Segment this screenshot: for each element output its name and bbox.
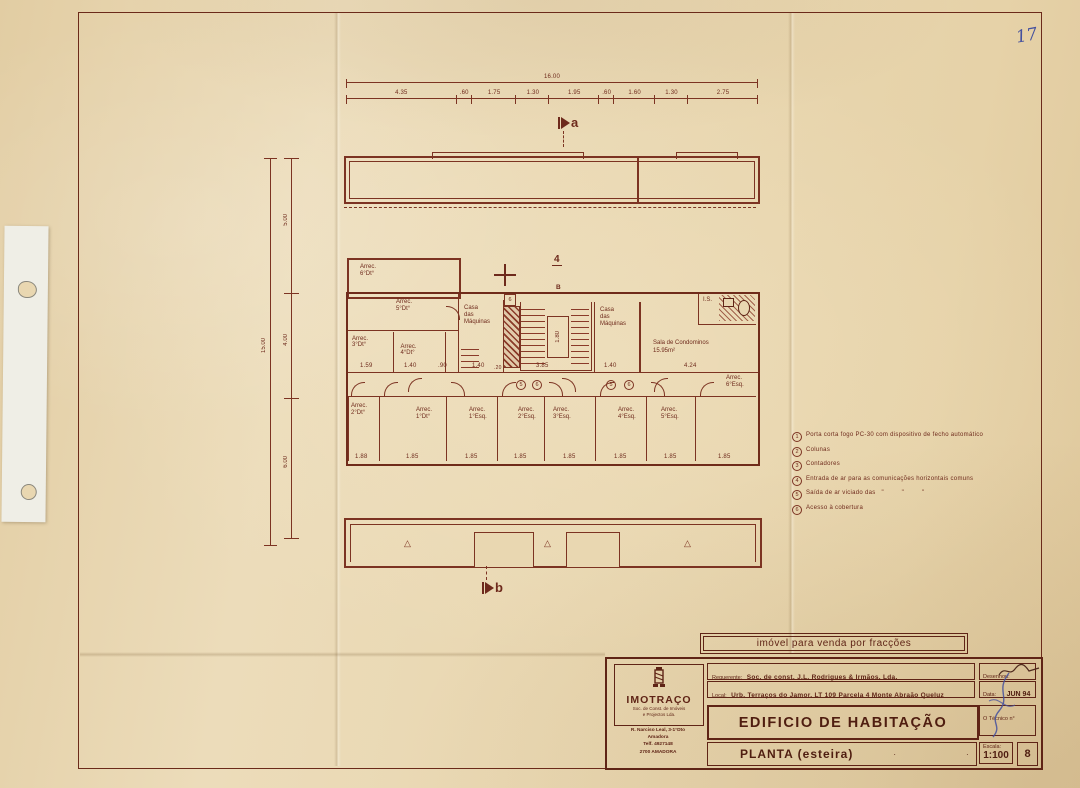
section-marker-a: a [558,115,578,130]
room-area: 15.95m² [653,348,675,355]
legend-text: Contadores [806,461,840,467]
drawing-title: PLANTA (esteira) [740,747,853,761]
legend-item: 3Contadores [792,461,1060,471]
vent-marker-4: 4 [552,254,562,266]
fold-crease [788,13,795,653]
sale-stamp-box: imóvel para venda por fracções [700,633,968,654]
legend-text: Entrada de ar para as comunicações horiz… [806,476,973,482]
requerente-row: Requerente: Soc. de const. J.L. Rodrigue… [707,663,975,680]
triangle-vent-icon: △ [404,538,411,549]
section-bar-icon [482,582,484,594]
fold-crease [80,652,605,657]
dim-seg-left: 5.00 [283,214,289,226]
room-label: Arrec. 5°Esq. [661,407,679,421]
dim-column-left: 15.00 5.00 4.00 6.00 [262,152,302,554]
room-label: Arrec. 1°Esq. [469,407,487,421]
room-arrec-6esq: Arrec. 6°Esq. 1.85 [696,396,756,461]
dim-total-left: 15.00 [261,338,267,353]
project-title: EDIFICIO DE HABITAÇÃO [739,715,947,731]
escala-box: Escala: 1:100 [979,742,1013,764]
dim-mid: 1.40 [472,363,484,369]
legend-item: 5Saída de ar viciado das " " " [792,490,1060,500]
circled-marker-6: 6 [532,380,542,390]
dim-bottom: 1.85 [664,454,676,460]
dim-mid: 3.85 [536,363,548,369]
legend-item: 2Colunas [792,447,1060,457]
dim-seg-left: 4.00 [283,334,289,346]
dim-bottom: 1.85 [718,454,730,460]
sheet-number-box: 8 [1017,742,1038,766]
shaft-number-badge: 6 [504,294,516,306]
legend-text: Acesso à cobertura [806,505,863,511]
stair-landing: 1.80 [547,316,569,358]
grid-marker-B: B [556,284,561,291]
room-label: Arrec. 2°Dt° [351,403,367,417]
dim-line-mid [348,372,758,373]
legend-text: Colunas [806,447,830,453]
room-arrec-5esq: Arrec. 5°Esq. 1.85 [647,396,696,461]
local-value: Urb. Terraços do Jamor, LT 109 Parcela 4… [731,692,944,699]
punch-hole-icon [18,281,37,298]
dashed-line [344,207,756,208]
terrace-recess [566,532,620,567]
dot-mark: · [966,750,969,759]
dim-bottom: 1.85 [406,454,418,460]
legend: 1Porta corta fogo PC-30 com dispositivo … [792,432,1060,519]
legend-item: 4Entrada de ar para as comunicações hori… [792,476,1060,486]
legend-number: 2 [792,447,802,457]
room-label: Arrec. 6°Esq. [726,375,744,389]
stair-flight [521,304,545,366]
room-label: Arrec. 3°Dt° [352,336,368,350]
dim-total-top: 16.00 [544,74,560,80]
dim-mid: .90 [438,363,447,369]
dim-bottom: 1.85 [614,454,626,460]
room-arrec-4esq: Arrec. 4°Esq. 1.85 [596,396,647,461]
dim-seg: 2.75 [717,90,729,96]
dim-mid: .20 [494,365,502,371]
imotraco-logo-icon [651,667,667,689]
local-label: Local: [712,693,727,699]
dim-mid: 1.40 [604,363,616,369]
legend-item: 1Porta corta fogo PC-30 com dispositivo … [792,432,1060,442]
terrace-bottom-outline: △ △ △ [344,518,762,568]
company-name: IMOTRAÇO [615,694,703,706]
room-casa-maquinas-right: Casa das Máquinas [594,302,640,373]
legend-number: 4 [792,476,802,486]
room-label: Arrec. 4°Dt° [401,344,417,358]
section-triangle-icon [561,117,570,129]
dim-mid: 1.40 [404,363,416,369]
room-label: Arrec. 2°Esq. [518,407,536,421]
section-marker-b: b [482,580,503,595]
legend-number: 3 [792,461,802,471]
dim-mid: 1.59 [360,363,372,369]
north-cross-icon [494,264,516,286]
dot-mark: · [893,750,896,759]
room-arrec-1dt: Arrec. 1°Dt° 1.85 [380,396,447,461]
legend-number: 5 [792,490,802,500]
dim-bottom: 1.85 [563,454,575,460]
circled-marker-5: 5 [516,380,526,390]
room-label: Casa das Máquinas [464,305,490,326]
punch-strip [1,226,48,522]
section-letter: a [571,115,578,130]
dim-line-total: 16.00 [346,82,758,83]
handwritten-page-number: 17 [1014,24,1039,47]
punch-hole-icon [21,484,37,500]
terrace-step-notch [432,152,584,159]
door-arc-icon [562,378,576,392]
room-arrec-5dt: Arrec. 5°Dt° [348,294,459,331]
dim-seg: 4.35 [395,90,407,96]
triangle-vent-icon: △ [684,538,691,549]
room-arrec-1esq: Arrec. 1°Esq. 1.85 [447,396,498,461]
dim-row-top: 4.35 .60 1.75 1.30 1.95 .60 1.60 1.30 2.… [346,98,758,99]
room-arrec-3esq: Arrec. 3°Esq. 1.85 [545,396,596,461]
dim-bottom: 1.85 [514,454,526,460]
stairwell: 1.80 [520,302,592,371]
terrace-top-inner-line [349,161,755,199]
local-row: Local: Urb. Terraços do Jamor, LT 109 Pa… [707,681,975,698]
section-line [563,131,565,147]
dim-seg: 1.75 [488,90,500,96]
room-label: Arrec. 1°Dt° [416,407,432,421]
room-label: I.S. [703,297,712,304]
room-label: Arrec. 3°Esq. [553,407,571,421]
dim-bottom: 1.88 [355,454,367,460]
stair-dim: 1.80 [555,331,561,343]
requerente-value: Soc. de const. J.L. Rodrigues & Irmãos, … [747,674,898,681]
door-arc-icon [408,378,422,392]
room-label: Arrec. 4°Esq. [618,407,636,421]
legend-item: 6Acesso à cobertura [792,505,1060,515]
room-arrec-2dt: Arrec. 2°Dt° 1.88 [348,396,380,461]
legend-text: Porta corta fogo PC-30 com dispositivo d… [806,432,983,438]
legend-text: Saída de ar viciado das " " " [806,490,924,496]
room-arrec-2esq: Arrec. 2°Esq. 1.85 [498,396,545,461]
floor-plan: 16.00 4.35 .60 1.75 1.30 1.95 .60 1.60 1… [344,68,760,613]
dim-seg: .60 [602,90,611,96]
circled-marker-6: 6 [624,380,634,390]
section-bar-icon [558,117,560,129]
dim-seg: 1.95 [568,90,580,96]
dim-seg: .60 [460,90,469,96]
drawing-title-box: PLANTA (esteira) · · [707,742,977,766]
section-letter: b [495,580,503,595]
stair-flight [571,304,589,366]
sink-icon [723,298,734,307]
room-label: Arrec. 6°Dt° [360,264,376,278]
project-title-box: EDIFICIO DE HABITAÇÃO [707,705,979,740]
dim-mid: 4.24 [684,363,696,369]
company-address: R. Narciso Leal, 3-1°Dto Amadora Telf. 4… [614,727,702,756]
main-block: Arrec. 5°Dt° Arrec. 3°Dt° Arrec. 4°Dt° C… [346,292,760,466]
legend-number: 1 [792,432,802,442]
sale-stamp-text: imóvel para venda por fracções [703,636,965,651]
dim-seg: 1.30 [665,90,677,96]
terrace-divider-wall [637,158,639,202]
sheet-number: 8 [1024,748,1030,760]
dim-seg: 1.60 [628,90,640,96]
title-block: IMOTRAÇO Soc. de Const. de Imóveis e Pro… [605,657,1043,770]
storage-rooms-row: Arrec. 2°Dt° 1.88 Arrec. 1°Dt° 1.85 Arre… [348,396,752,461]
toilet-icon [738,300,750,316]
ventilation-shaft [503,306,520,368]
escala-value: 1:100 [983,750,1009,761]
section-line [486,566,488,580]
room-label: Sala de Condominos [653,340,709,347]
dim-seg: 1.30 [527,90,539,96]
blueprint-sheet: 17 16.00 4.35 .60 1.75 1.30 1.95 .60 1.6… [0,0,1080,788]
room-is: I.S. [698,294,756,325]
dim-seg-left: 6.00 [283,456,289,468]
company-subtitle: Soc. de Const. de Imóveis e Projectos Ld… [615,706,703,717]
room-label: Arrec. 5°Dt° [396,299,412,313]
terrace-step-notch [676,152,738,159]
triangle-vent-icon: △ [544,538,551,549]
dim-bottom: 1.85 [465,454,477,460]
legend-number: 6 [792,505,802,515]
tecnico-signature-icon [975,671,1021,741]
room-label: Casa das Máquinas [600,307,626,328]
terrace-recess [474,532,534,567]
terrace-top-outline [344,156,760,204]
company-cell: IMOTRAÇO Soc. de Const. de Imóveis e Pro… [614,664,704,726]
section-triangle-icon [485,582,494,594]
